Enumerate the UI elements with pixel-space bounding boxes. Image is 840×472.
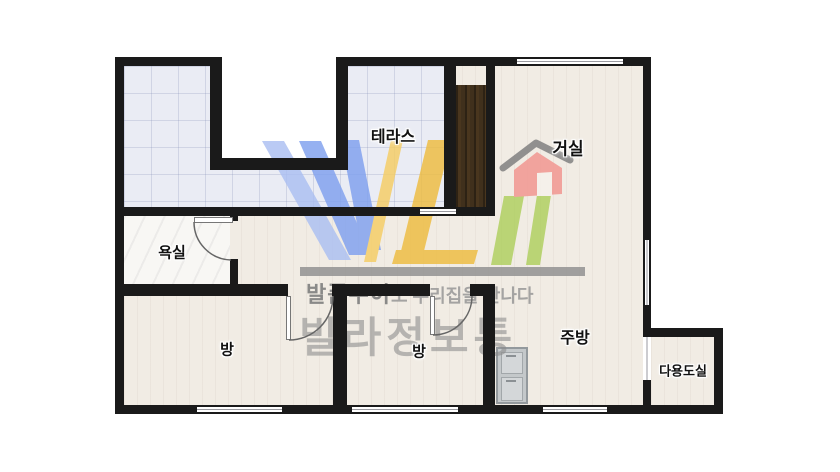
room1-door-leaf <box>286 296 291 340</box>
terrace-notch <box>222 50 336 158</box>
room-label-kitchen: 주방 <box>560 324 589 348</box>
bathroom-door-leaf <box>194 217 233 223</box>
wall-notch-bottom <box>210 158 348 170</box>
wall-left-outer <box>115 57 124 414</box>
wall-top-left <box>115 57 210 66</box>
room-label-utility: 다용도실 <box>659 361 707 380</box>
wardrobe <box>456 85 486 210</box>
room-label-bathroom: 욕실 <box>158 242 186 263</box>
wall-notch-right <box>336 57 348 170</box>
window-bottom-room2 <box>352 405 458 414</box>
floor-plan: 발품두이도 우리집을 만나다 빌라정보통 테라스 거실 욕실 방 방 주방 다용… <box>0 0 840 472</box>
wall-utility-top <box>643 328 723 337</box>
room-label-room1: 방 <box>220 339 234 360</box>
room-label-terrace: 테라스 <box>371 123 415 147</box>
terrace-sliding-door <box>420 207 456 216</box>
wall-utility-right <box>714 328 723 414</box>
wall-mid-horizontal-a <box>115 284 288 296</box>
room-label-living: 거실 <box>552 135 583 160</box>
wall-right-upper <box>643 57 651 240</box>
window-bottom-kitchen <box>543 405 607 414</box>
room-label-room2: 방 <box>412 341 426 362</box>
window-kitchen-right <box>643 240 651 305</box>
wall-living-left <box>486 57 495 215</box>
wall-notch-left <box>210 57 222 170</box>
wall-room-divider-2 <box>483 284 495 405</box>
utility-door <box>643 337 651 380</box>
window-bottom-room1 <box>197 405 282 414</box>
wall-room-divider-1 <box>333 296 347 405</box>
wall-terrace-bottom-left <box>115 207 420 216</box>
refrigerator-bottom-compartment <box>501 377 523 401</box>
window-top <box>517 57 623 66</box>
room2-door-leaf <box>430 296 435 335</box>
wall-mid-horizontal-b <box>332 284 430 296</box>
wall-terrace-right <box>444 57 456 216</box>
